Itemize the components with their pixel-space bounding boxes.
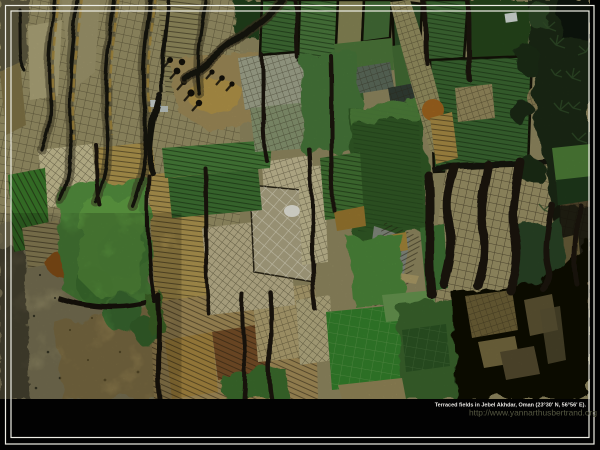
svg-text:http://www.yannarthusbertrand.: http://www.yannarthusbertrand.org [469,408,597,418]
